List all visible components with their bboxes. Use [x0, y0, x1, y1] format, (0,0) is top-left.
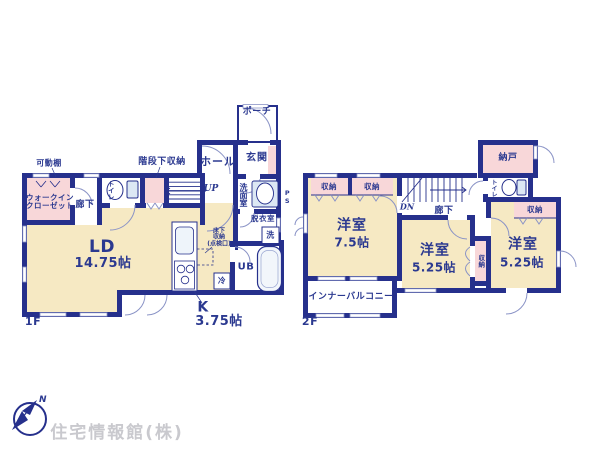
- label-western-room1-size: 7.5帖: [334, 237, 369, 250]
- label-western-room1-name: 洋室: [337, 218, 367, 233]
- label-walk-in-closet-line2: クローゼット: [26, 202, 74, 210]
- label-pipe-space: PS: [284, 189, 291, 205]
- label-fridge: 冷: [218, 277, 226, 285]
- floorplan-drawing: [0, 0, 600, 450]
- label-underfloor-storage: 床下 収納 (点検口): [207, 228, 231, 247]
- label-western-room2-name: 洋室: [420, 243, 450, 258]
- label-inner-balcony: インナーバルコニー: [308, 293, 393, 303]
- label-dressing-room: 脱衣室: [251, 215, 275, 223]
- label-western-room3-size: 5.25帖: [500, 257, 544, 270]
- label-compass-north: N: [39, 396, 47, 406]
- label-closet-3: 収納: [477, 255, 484, 268]
- floor1-room-fills: [25, 145, 279, 312]
- label-closet-4: 収納: [527, 206, 543, 214]
- label-movable-shelf: 可動棚: [36, 160, 62, 169]
- label-corridor-1f: 廊下: [75, 201, 94, 211]
- label-unit-bath: UB: [238, 263, 255, 274]
- label-floor1: 1F: [25, 316, 41, 328]
- label-storage-room: 納戸: [498, 154, 517, 164]
- label-ld-size: 14.75帖: [74, 257, 131, 271]
- label-toilet-1f: トイレ: [107, 180, 114, 200]
- floorplan-image: 可動棚 ウォークイン クローゼット 廊下 トイレ 階段下収納 UP ホール 玄関…: [0, 0, 600, 450]
- label-porch: ポーチ: [243, 108, 272, 118]
- label-floor2: 2F: [302, 316, 318, 328]
- label-closet-2: 収納: [364, 183, 380, 191]
- label-hall: ホール: [200, 156, 236, 168]
- label-underfloor-line3: (点検口): [207, 241, 231, 247]
- label-washer: 洗: [266, 231, 275, 240]
- label-corridor-2f: 廊下: [434, 207, 453, 217]
- label-under-stair-storage: 階段下収納: [138, 158, 186, 168]
- label-closet-1: 収納: [321, 183, 337, 191]
- label-kitchen-size: 3.75帖: [195, 315, 243, 329]
- label-ld-name: LD: [89, 238, 115, 256]
- label-up: UP: [204, 185, 219, 195]
- label-western-room3-name: 洋室: [508, 237, 538, 252]
- watermark-company: 住宅情報館(株): [50, 424, 184, 442]
- label-dn: DN: [400, 203, 414, 212]
- label-toilet-2f: トイレ: [490, 179, 496, 197]
- label-walk-in-closet: ウォークイン クローゼット: [26, 194, 74, 210]
- floor2-toilet-fixture: [502, 180, 526, 196]
- label-western-room2-size: 5.25帖: [412, 262, 456, 275]
- label-entrance: 玄関: [246, 154, 268, 165]
- label-washroom: 洗面室: [239, 183, 247, 207]
